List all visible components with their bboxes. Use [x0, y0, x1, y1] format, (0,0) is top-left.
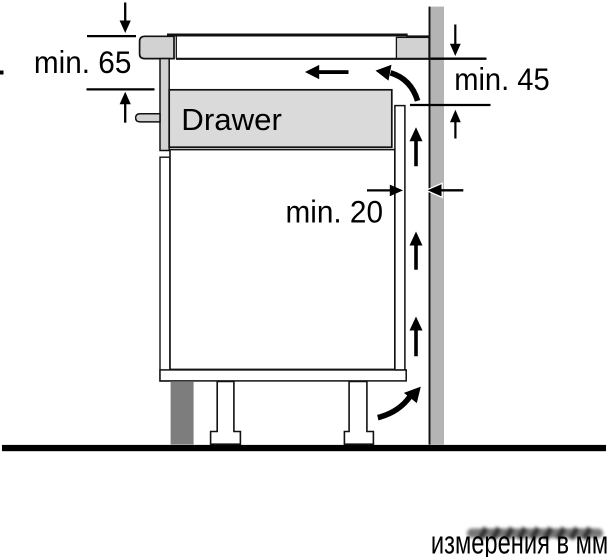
svg-text:min. 65: min. 65: [34, 44, 131, 80]
svg-text:Drawer: Drawer: [181, 102, 282, 137]
svg-text:min. 45: min. 45: [454, 61, 550, 97]
svg-text:измерения в мм: измерения в мм: [431, 525, 608, 557]
svg-text:min. 20: min. 20: [286, 194, 384, 230]
